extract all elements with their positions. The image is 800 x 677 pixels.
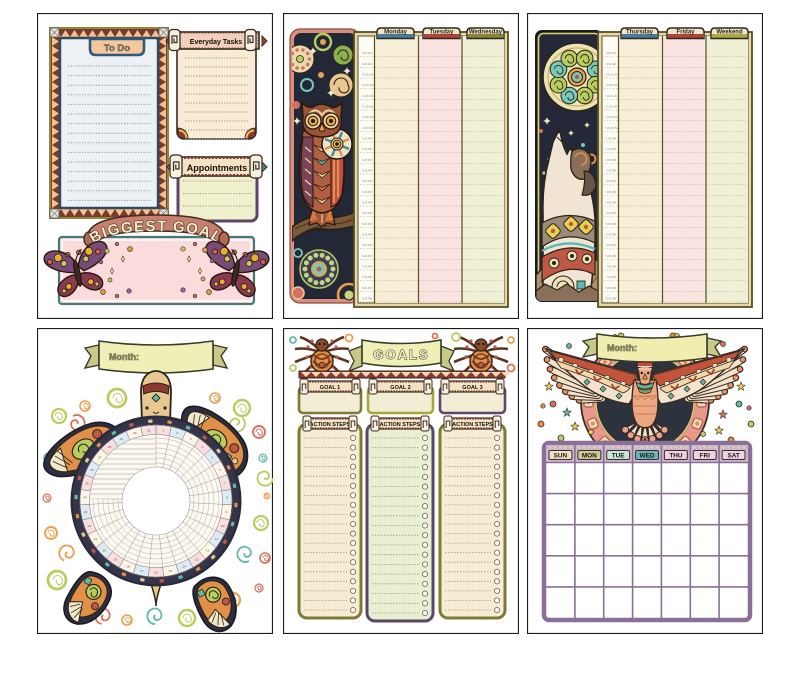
svg-text:Wednesday: Wednesday — [469, 30, 503, 36]
svg-text:11:30 AM: 11:30 AM — [362, 105, 374, 109]
svg-text:30: 30 — [133, 431, 137, 435]
svg-text:31: 31 — [147, 428, 151, 432]
svg-text:11: 11 — [215, 537, 218, 541]
svg-text:ACTION STEPS: ACTION STEPS — [310, 422, 351, 428]
svg-text:4:30 PM: 4:30 PM — [362, 211, 373, 215]
svg-text:ACTION STEPS: ACTION STEPS — [380, 422, 421, 428]
svg-text:8:30 PM: 8:30 PM — [606, 297, 617, 301]
svg-text:ACTION STEPS: ACTION STEPS — [452, 422, 493, 428]
svg-text:Month:: Month: — [607, 343, 637, 353]
svg-text:SAT: SAT — [727, 453, 739, 460]
svg-text:WED: WED — [640, 453, 655, 460]
svg-text:4:00 PM: 4:00 PM — [362, 201, 373, 205]
svg-text:2: 2 — [176, 431, 178, 435]
svg-text:12: 12 — [206, 548, 210, 552]
svg-text:1:30 PM: 1:30 PM — [362, 147, 373, 151]
svg-text:12:30 PM: 12:30 PM — [606, 126, 618, 130]
svg-text:8: 8 — [226, 496, 228, 500]
svg-text:Weekend: Weekend — [716, 30, 743, 36]
svg-text:TUE: TUE — [612, 453, 626, 460]
svg-text:3:00 PM: 3:00 PM — [606, 179, 617, 183]
svg-text:4:00 PM: 4:00 PM — [606, 201, 617, 205]
svg-text:6:30 PM: 6:30 PM — [362, 254, 373, 258]
svg-text:Month:: Month: — [109, 352, 139, 362]
svg-text:3: 3 — [190, 437, 192, 441]
svg-text:5: 5 — [211, 456, 213, 460]
svg-text:3:00 PM: 3:00 PM — [362, 179, 373, 183]
svg-text:7: 7 — [224, 481, 226, 485]
svg-text:10:00 AM: 10:00 AM — [362, 73, 374, 77]
svg-text:13: 13 — [195, 558, 199, 562]
svg-text:THU: THU — [669, 453, 683, 460]
svg-text:10: 10 — [221, 524, 225, 528]
svg-text:2:00 PM: 2:00 PM — [606, 158, 617, 162]
svg-text:8:00 PM: 8:00 PM — [362, 286, 373, 290]
svg-text:GOAL 2: GOAL 2 — [390, 385, 410, 391]
svg-text:23: 23 — [84, 510, 88, 514]
svg-text:9: 9 — [226, 510, 228, 514]
svg-text:2:00 PM: 2:00 PM — [362, 158, 373, 162]
svg-text:FRI: FRI — [700, 453, 711, 460]
svg-text:1: 1 — [162, 428, 164, 432]
svg-text:12:00 PM: 12:00 PM — [606, 115, 618, 119]
svg-text:Tuesday: Tuesday — [430, 30, 455, 36]
svg-text:1:30 PM: 1:30 PM — [606, 147, 617, 151]
svg-text:3:30 PM: 3:30 PM — [606, 190, 617, 194]
svg-text:7:00 PM: 7:00 PM — [362, 265, 373, 269]
svg-text:GOAL 3: GOAL 3 — [462, 385, 482, 391]
svg-text:Thursday: Thursday — [626, 30, 654, 36]
svg-text:12:30 PM: 12:30 PM — [362, 126, 374, 130]
svg-text:12:00 PM: 12:00 PM — [362, 115, 374, 119]
svg-text:17: 17 — [140, 569, 144, 573]
svg-text:6: 6 — [219, 468, 221, 472]
svg-text:Appointments: Appointments — [187, 163, 248, 173]
svg-text:14: 14 — [182, 565, 186, 569]
svg-text:11:00 AM: 11:00 AM — [606, 94, 618, 98]
svg-text:27: 27 — [98, 456, 102, 460]
svg-text:4: 4 — [202, 445, 204, 449]
svg-text:8:00 PM: 8:00 PM — [606, 286, 617, 290]
svg-text:24: 24 — [83, 496, 87, 500]
svg-text:18: 18 — [126, 565, 130, 569]
svg-text:8:30 PM: 8:30 PM — [362, 297, 373, 301]
svg-text:1:00 PM: 1:00 PM — [606, 137, 617, 141]
svg-text:26: 26 — [90, 468, 94, 472]
svg-text:15: 15 — [169, 569, 173, 573]
svg-text:Monday: Monday — [384, 30, 407, 36]
svg-text:11:30 AM: 11:30 AM — [606, 105, 618, 109]
svg-text:10:00 AM: 10:00 AM — [606, 73, 618, 77]
svg-text:Everyday Tasks: Everyday Tasks — [190, 39, 243, 46]
svg-text:9:30 AM: 9:30 AM — [362, 62, 373, 66]
svg-text:7:00 PM: 7:00 PM — [606, 265, 617, 269]
svg-text:6:00 PM: 6:00 PM — [362, 243, 373, 247]
svg-text:29: 29 — [120, 437, 124, 441]
svg-text:GOAL 1: GOAL 1 — [320, 385, 340, 391]
svg-text:2:30 PM: 2:30 PM — [362, 169, 373, 173]
svg-text:2:30 PM: 2:30 PM — [606, 169, 617, 173]
svg-text:7:30 PM: 7:30 PM — [362, 275, 373, 279]
svg-text:MON: MON — [582, 453, 597, 460]
svg-text:28: 28 — [108, 445, 112, 449]
svg-text:9:00 AM: 9:00 AM — [362, 51, 373, 55]
svg-text:SUN: SUN — [554, 453, 568, 460]
svg-text:6:00 PM: 6:00 PM — [606, 243, 617, 247]
svg-text:1:00 PM: 1:00 PM — [362, 137, 373, 141]
svg-text:10:30 AM: 10:30 AM — [606, 83, 618, 87]
svg-text:21: 21 — [94, 537, 98, 541]
svg-text:9:00 AM: 9:00 AM — [606, 51, 617, 55]
svg-text:5:00 PM: 5:00 PM — [362, 222, 373, 226]
svg-text:16: 16 — [154, 570, 158, 574]
svg-text:22: 22 — [87, 524, 91, 528]
svg-text:7:30 PM: 7:30 PM — [606, 275, 617, 279]
svg-text:GOALS: GOALS — [373, 347, 429, 362]
svg-text:19: 19 — [114, 558, 118, 562]
svg-text:6:30 PM: 6:30 PM — [606, 254, 617, 258]
svg-text:10:30 AM: 10:30 AM — [362, 83, 374, 87]
svg-text:To Do: To Do — [104, 43, 130, 54]
svg-text:9:30 AM: 9:30 AM — [606, 62, 617, 66]
svg-text:5:30 PM: 5:30 PM — [362, 233, 373, 237]
svg-text:5:30 PM: 5:30 PM — [606, 233, 617, 237]
svg-text:11:00 AM: 11:00 AM — [362, 94, 374, 98]
svg-text:25: 25 — [85, 481, 89, 485]
svg-text:Friday: Friday — [676, 30, 695, 36]
svg-text:3:30 PM: 3:30 PM — [362, 190, 373, 194]
svg-text:5:00 PM: 5:00 PM — [606, 222, 617, 226]
svg-text:4:30 PM: 4:30 PM — [606, 211, 617, 215]
svg-text:20: 20 — [103, 548, 107, 552]
